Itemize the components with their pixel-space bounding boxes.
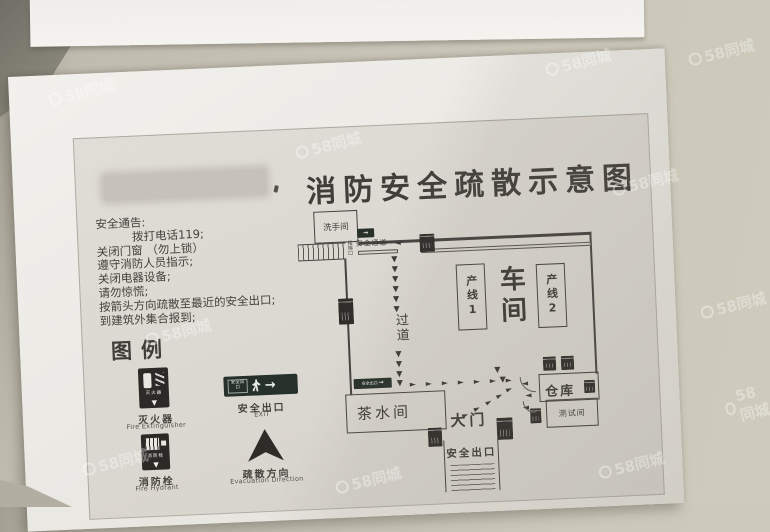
watermark: 58同城 [721,380,770,429]
printed-sheet: 消防安全疏散示意图 安全通告: 拨打电话119; 关闭门窗 （勿上锁） 遵守消防… [73,113,665,520]
down-arrow-icon: ▼ [392,275,398,283]
left-arrow-icon: ◄ [525,391,531,399]
exit-sign-text: 安全出口 [227,379,248,394]
diagonal-arrow-icon: ► [495,391,504,401]
fire-extinguisher-marker-icon [496,417,513,440]
right-arrow-icon: → [363,230,368,236]
hydrant-valve [161,440,166,445]
room-line1: 产线1 [456,263,488,330]
legend-heading: 图例 [110,333,171,366]
exit-passage: 安全出口 [443,438,500,492]
right-arrow-icon: ► [426,380,432,388]
right-arrow-icon: ► [410,381,416,389]
exit-sign-icon: 安全出口 → [223,374,298,397]
smudge-mark [273,185,278,193]
down-arrow-icon: ▼ [392,285,398,293]
exit-sign-mini-text: 安全出口 [362,381,378,386]
line1-label: 产线1 [463,275,481,320]
legend-label-en: Fire Extinguisher [121,420,191,431]
down-arrow-icon: ▼ [500,376,506,384]
corridor-label: 过道 [391,313,411,348]
room-test: 测试间 [546,398,599,428]
room-washroom: 洗手间 [313,210,358,244]
left-arrow-icon: ◄ [394,239,400,247]
right-arrow-icon: → [264,378,275,391]
fire-extinguisher-marker-icon [561,356,575,371]
down-arrow-icon: ▼ [392,265,398,273]
down-arrow-icon: ▼ [395,350,401,358]
down-arrow-icon: ▼ [494,366,500,374]
left-arrow-icon: ◄ [522,380,528,388]
down-arrow-icon: ▼ [393,295,399,303]
watermark: 58同城 [686,34,756,71]
passage-label: 安全通道 [355,238,387,249]
legend-label-en: EXIT [232,409,292,420]
fire-extinguisher-marker-icon [584,380,596,393]
floor-plan: 洗手间 楼梯口 → 安全通道 ◄ ▼ ▼ ▼ ▼ [290,190,635,502]
diagonal-arrow-icon: ► [484,397,493,407]
room-line2: 产线2 [536,263,568,328]
outer-wall-right [589,232,597,374]
down-arrow-icon: ▼ [391,255,397,263]
right-arrow-icon: ► [458,378,464,386]
redacted-company-name [103,169,266,201]
fire-hydrant-marker-icon [338,298,354,325]
stairs-label: 楼梯口 [346,240,354,264]
safety-notice: 安全通告: 拨打电话119; 关闭门窗 （勿上锁） 遵守消防人员指示; 关闭电器… [95,211,276,329]
right-arrow-icon: ► [442,379,448,387]
workbench [421,242,591,253]
left-arrow-icon: ◄ [523,404,529,412]
hydrant-coil [145,438,160,451]
down-arrow-icon: ▼ [396,360,402,368]
exit-sign-marker-icon: 安全出口 → [354,378,392,390]
fire-extinguisher-icon: 灭火器 ▼ [138,367,170,408]
down-arrow-icon: ▼ [397,379,403,387]
down-arrow-icon: ▼ [142,461,170,469]
hydrant-mini-text: 消防栓 [142,452,170,459]
exit-hatching [450,463,495,493]
down-arrow-icon: ▼ [139,399,169,407]
extinguisher-bottle [143,373,152,388]
paper-strip-above [30,0,645,47]
outer-wall-left [344,259,352,395]
right-arrow-icon: ► [474,378,480,386]
diagonal-arrow-icon: ► [505,385,514,395]
fire-extinguisher-marker-icon [419,234,435,253]
running-man-icon [251,379,261,391]
extinguisher-mini-text: 灭火器 [139,389,169,396]
test-room-label: 测试间 [558,407,585,419]
legend-label-en: Fire Hydrant [122,482,192,493]
watermark: 58同城 [698,287,768,324]
stairs [298,242,347,261]
gate-label: 大门 [450,408,489,431]
right-arrow-icon: ► [490,377,496,385]
fire-hydrant-icon: 消防栓 ▼ [141,433,171,470]
tea-room-label: 茶水间 [357,401,412,424]
warehouse-label: 仓库 [545,380,576,400]
line2-label: 产线2 [543,273,561,318]
evacuation-direction-icon [247,428,284,462]
washroom-label: 洗手间 [323,220,349,233]
fire-extinguisher-marker-icon [543,356,557,371]
workshop-label: 车间 [492,264,532,328]
fire-extinguisher-marker-icon [428,427,443,447]
extinguisher-spray [155,372,165,385]
right-arrow-icon: → [379,380,384,386]
exit-label: 安全出口 [445,444,499,461]
poster-paper: 消防安全疏散示意图 安全通告: 拨打电话119; 关闭门窗 （勿上锁） 遵守消防… [8,48,684,531]
exit-sign-marker-icon: → [357,228,374,238]
